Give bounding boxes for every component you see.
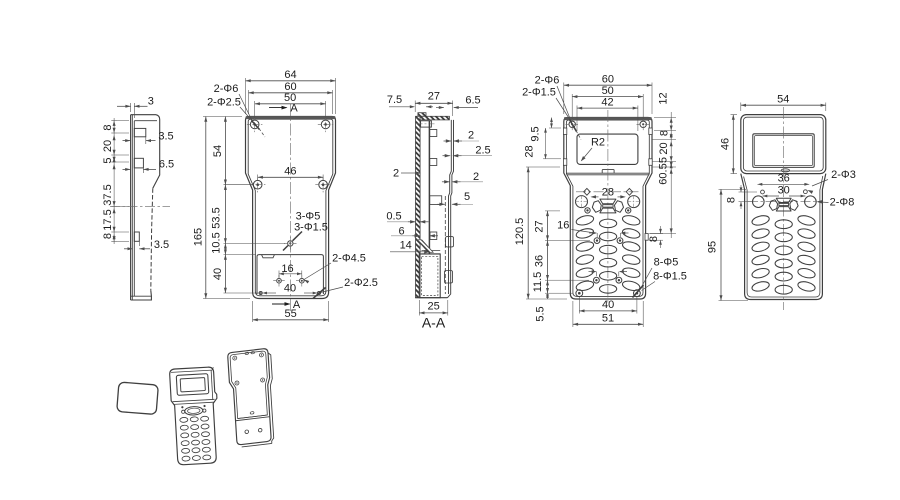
svg-text:95: 95 xyxy=(707,241,719,253)
svg-text:25: 25 xyxy=(427,301,439,313)
svg-text:14: 14 xyxy=(400,240,412,252)
svg-text:20: 20 xyxy=(102,140,114,152)
svg-text:50: 50 xyxy=(602,85,614,97)
svg-text:11.5: 11.5 xyxy=(532,272,544,293)
svg-text:6.5: 6.5 xyxy=(159,159,174,171)
svg-text:2-Φ1.5: 2-Φ1.5 xyxy=(522,87,556,99)
svg-text:2-Φ6: 2-Φ6 xyxy=(214,83,239,95)
svg-text:51: 51 xyxy=(602,313,614,325)
svg-text:2: 2 xyxy=(473,171,479,183)
svg-text:53.5: 53.5 xyxy=(211,207,223,228)
svg-text:8: 8 xyxy=(102,233,114,239)
svg-text:2: 2 xyxy=(393,168,399,180)
svg-text:8: 8 xyxy=(659,130,671,136)
svg-text:2-Φ3: 2-Φ3 xyxy=(831,169,856,181)
svg-text:5: 5 xyxy=(464,191,470,203)
svg-text:120.5: 120.5 xyxy=(514,218,526,246)
svg-text:37.5: 37.5 xyxy=(102,184,114,205)
svg-text:36: 36 xyxy=(778,173,790,185)
svg-text:A-A: A-A xyxy=(422,315,446,331)
svg-text:36: 36 xyxy=(534,255,546,267)
svg-text:30: 30 xyxy=(778,185,790,197)
svg-text:8: 8 xyxy=(726,197,738,203)
svg-text:60.5: 60.5 xyxy=(658,163,670,184)
svg-text:3: 3 xyxy=(148,96,154,108)
svg-text:2-Φ2.5: 2-Φ2.5 xyxy=(344,277,378,289)
svg-text:17.5: 17.5 xyxy=(102,209,114,230)
svg-text:3.5: 3.5 xyxy=(158,131,173,143)
svg-text:7.5: 7.5 xyxy=(387,94,402,106)
svg-text:64: 64 xyxy=(284,69,296,81)
svg-text:2-Φ6: 2-Φ6 xyxy=(535,75,560,87)
svg-text:46: 46 xyxy=(284,166,296,178)
svg-text:16: 16 xyxy=(557,219,569,231)
svg-text:8-Φ1.5: 8-Φ1.5 xyxy=(653,271,687,283)
svg-text:8: 8 xyxy=(648,236,660,242)
svg-text:2: 2 xyxy=(468,130,474,142)
svg-text:2-Φ8: 2-Φ8 xyxy=(830,197,855,209)
svg-text:54: 54 xyxy=(212,145,224,157)
svg-text:54: 54 xyxy=(777,93,789,105)
svg-text:40: 40 xyxy=(212,268,224,280)
svg-text:5: 5 xyxy=(102,157,114,163)
svg-text:3-Φ1.5: 3-Φ1.5 xyxy=(294,222,328,234)
svg-text:55: 55 xyxy=(284,308,296,320)
svg-text:A: A xyxy=(290,103,298,115)
svg-text:27: 27 xyxy=(428,90,440,102)
svg-text:3.5: 3.5 xyxy=(154,239,169,251)
svg-text:0.5: 0.5 xyxy=(386,211,401,223)
svg-text:28: 28 xyxy=(524,145,536,157)
svg-text:12: 12 xyxy=(658,92,670,104)
svg-text:46: 46 xyxy=(720,138,732,150)
svg-text:9.5: 9.5 xyxy=(530,126,542,141)
svg-text:5: 5 xyxy=(658,157,670,163)
svg-text:60: 60 xyxy=(602,73,614,85)
svg-text:8-Φ5: 8-Φ5 xyxy=(654,257,679,269)
svg-text:2-Φ2.5: 2-Φ2.5 xyxy=(207,97,241,109)
svg-text:2-Φ4.5: 2-Φ4.5 xyxy=(332,253,366,265)
svg-text:8: 8 xyxy=(102,124,114,130)
svg-text:40: 40 xyxy=(602,299,614,311)
svg-text:2.5: 2.5 xyxy=(475,144,490,156)
svg-text:165: 165 xyxy=(193,228,205,246)
svg-text:6.5: 6.5 xyxy=(465,95,480,107)
svg-text:27: 27 xyxy=(534,220,546,232)
svg-text:5.5: 5.5 xyxy=(535,306,547,321)
svg-text:R2: R2 xyxy=(591,137,605,149)
svg-text:42: 42 xyxy=(601,96,613,108)
svg-text:40: 40 xyxy=(284,283,296,295)
svg-text:28: 28 xyxy=(602,186,614,198)
svg-text:10.5: 10.5 xyxy=(211,232,223,253)
svg-text:20: 20 xyxy=(658,142,670,154)
